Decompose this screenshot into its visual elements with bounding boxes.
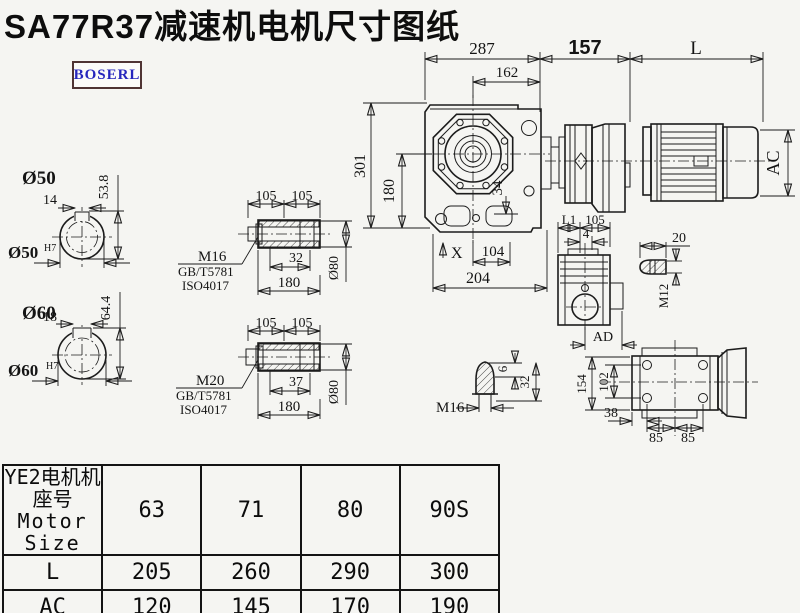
dim-104: 104 xyxy=(482,244,505,260)
label-std2b: ISO4017 xyxy=(180,402,227,417)
col-71: 71 xyxy=(201,465,300,555)
label-m20: M20 xyxy=(196,373,224,389)
hollow-shaft-m20: 105 105 37 180 Ø80 M20 GB/T5781 ISO4017 xyxy=(176,316,352,419)
dim-180-vert: 180 xyxy=(381,179,398,203)
gearbox-side-view: L1 105 4 AD xyxy=(558,212,637,350)
dim-AD: AD xyxy=(593,330,613,345)
row-label-AC: AC xyxy=(3,590,102,613)
dim-105b: 105 xyxy=(292,189,313,204)
shaft-section-50: Ø50 14 53.8 Ø50 H7 xyxy=(8,168,130,268)
label-bore50: Ø50 xyxy=(8,243,38,262)
cell-AC-90s: 190 xyxy=(400,590,499,613)
dim-157: 157 xyxy=(568,37,601,59)
col-63: 63 xyxy=(102,465,201,555)
cell-L-71: 260 xyxy=(201,555,300,590)
shaft-section-60: Ø60 18 64.4 Ø60 H7 xyxy=(8,292,132,386)
table-header-row: YE2电机机座号 Motor Size 63 71 80 90S xyxy=(3,465,499,555)
dim-L: L xyxy=(690,38,702,59)
bottom-dimensions: X 104 204 xyxy=(433,230,547,292)
label-std2a: ISO4017 xyxy=(182,278,229,293)
row-label-L: L xyxy=(3,555,102,590)
key-detail: 20 M12 xyxy=(640,231,690,308)
label-bore60-sup: H7 xyxy=(46,361,58,372)
motor-size-table: YE2电机机座号 Motor Size 63 71 80 90S L 205 2… xyxy=(2,464,500,613)
dim-4: 4 xyxy=(583,226,590,241)
dim-18: 18 xyxy=(43,310,57,325)
table-row-AC: AC 120 145 170 190 xyxy=(3,590,499,613)
dim-105c: 105 xyxy=(256,316,277,331)
dim-287: 287 xyxy=(469,39,495,58)
height-dimensions: 301 180 xyxy=(352,103,432,228)
dim-32b: 32 xyxy=(517,376,532,389)
dim-154: 154 xyxy=(574,374,589,394)
dim-X: X xyxy=(451,245,463,262)
ac-dimension: AC xyxy=(760,130,795,196)
table-header-cn: YE2电机机座号 xyxy=(4,466,101,510)
dim-204: 204 xyxy=(466,270,490,287)
cell-L-90s: 300 xyxy=(400,555,499,590)
drawing-page: SA77R37减速机电机尺寸图纸 BOSERL 287 162 157 xyxy=(0,0,800,613)
dim-105a: 105 xyxy=(256,189,277,204)
dim-105e: 105 xyxy=(585,212,605,227)
col-90s: 90S xyxy=(400,465,499,555)
table-header-cell: YE2电机机座号 Motor Size xyxy=(3,465,102,555)
cell-AC-63: 120 xyxy=(102,590,201,613)
label-m16-plug: M16 xyxy=(436,400,465,416)
dim-301: 301 xyxy=(352,154,369,178)
label-dia50: Ø50 xyxy=(22,168,56,189)
table-row-L: L 205 260 290 300 xyxy=(3,555,499,590)
cell-L-63: 205 xyxy=(102,555,201,590)
label-std1b: GB/T5781 xyxy=(176,388,232,403)
col-80: 80 xyxy=(301,465,400,555)
cell-L-80: 290 xyxy=(301,555,400,590)
dim-37: 37 xyxy=(289,375,303,390)
dim-102: 102 xyxy=(596,372,611,392)
dim-180a: 180 xyxy=(278,275,301,291)
motor-side-view xyxy=(545,124,770,201)
dim-32: 32 xyxy=(289,251,303,266)
dim-162: 162 xyxy=(496,65,519,81)
dim-dia80a: Ø80 xyxy=(327,256,342,280)
dim-34: 34 xyxy=(490,180,506,196)
technical-drawing: 287 162 157 L 301 180 xyxy=(0,0,800,462)
gearbox-back-view: 154 102 38 85 85 xyxy=(574,340,758,446)
gearbox-front-view xyxy=(415,95,550,243)
dim-180b: 180 xyxy=(278,399,301,415)
dim-L1: L1 xyxy=(562,212,576,227)
dim-dia80b: Ø80 xyxy=(327,380,342,404)
label-bore60: Ø60 xyxy=(8,361,38,380)
dim-6: 6 xyxy=(495,365,510,372)
hollow-shaft-m16: 105 105 32 180 Ø80 M16 GB/T5781 ISO4017 xyxy=(178,189,352,295)
label-m16: M16 xyxy=(198,249,227,265)
dim-14: 14 xyxy=(43,193,57,208)
dim-38: 38 xyxy=(604,406,618,421)
label-std1a: GB/T5781 xyxy=(178,264,234,279)
dim-85b: 85 xyxy=(681,431,695,446)
dim-105d: 105 xyxy=(292,316,313,331)
coupling-adapter xyxy=(541,124,630,212)
label-bore50-sup: H7 xyxy=(44,243,56,254)
cell-AC-80: 170 xyxy=(301,590,400,613)
dim-53-8: 53.8 xyxy=(97,175,112,200)
dim-64-4: 64.4 xyxy=(99,296,114,321)
dim-M12: M12 xyxy=(656,284,671,309)
dim-34-group: 34 xyxy=(490,180,518,214)
table-header-en: Motor Size xyxy=(4,510,101,554)
plug-detail: M16 6 32 xyxy=(436,353,542,416)
cell-AC-71: 145 xyxy=(201,590,300,613)
dim-85a: 85 xyxy=(649,431,663,446)
dim-20: 20 xyxy=(672,231,686,246)
dim-AC: AC xyxy=(763,150,783,175)
